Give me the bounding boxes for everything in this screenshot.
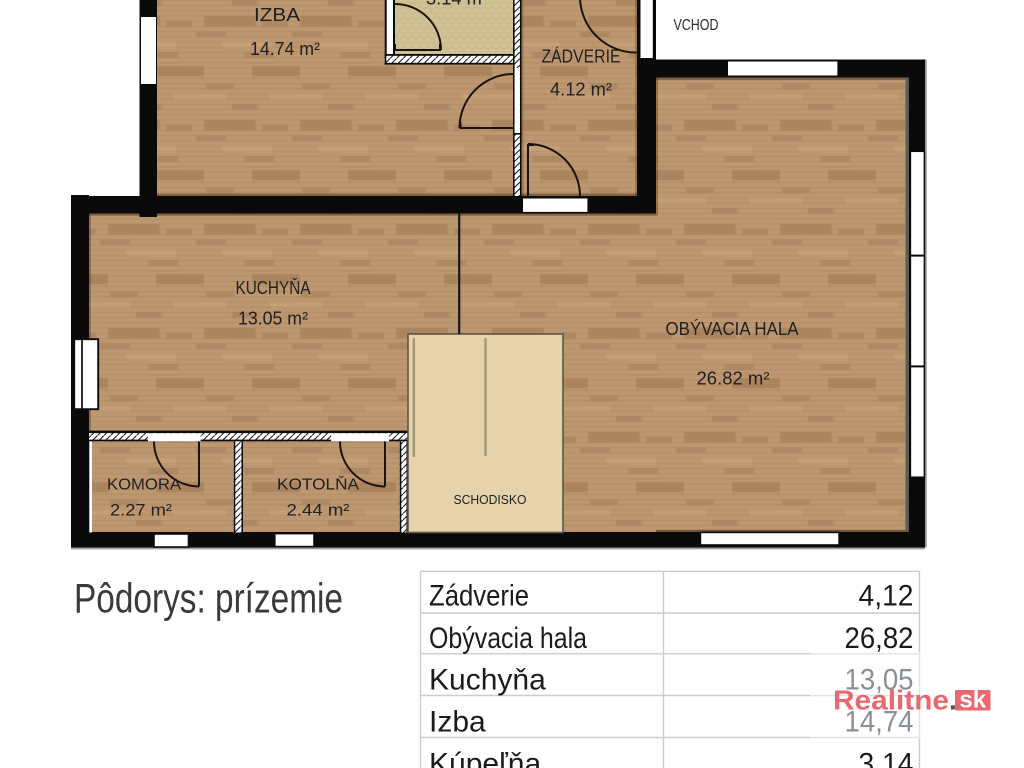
svg-text:Kúpeľňa: Kúpeľňa [429, 747, 541, 768]
svg-text:VCHOD: VCHOD [674, 17, 719, 34]
svg-text:Obývacia hala: Obývacia hala [429, 622, 587, 655]
svg-text:ZÁDVERIE: ZÁDVERIE [542, 47, 621, 67]
svg-text:Pôdorys: prízemie: Pôdorys: prízemie [74, 575, 343, 622]
svg-text:4.12 m²: 4.12 m² [550, 80, 612, 100]
svg-text:IZBA: IZBA [254, 5, 300, 25]
svg-text:2.27 m²: 2.27 m² [110, 502, 173, 520]
svg-text:14.74 m²: 14.74 m² [250, 39, 320, 59]
svg-text:26.82 m²: 26.82 m² [697, 369, 770, 389]
svg-text:KOTOLŇA: KOTOLŇA [277, 475, 359, 494]
svg-text:26,82: 26,82 [845, 622, 914, 655]
svg-text:Kuchyňa: Kuchyňa [429, 664, 546, 697]
svg-text:KOMORA: KOMORA [107, 477, 181, 494]
svg-text:13.05 m²: 13.05 m² [238, 309, 308, 329]
svg-text:4,12: 4,12 [859, 580, 914, 613]
svg-text:SCHODISKO: SCHODISKO [454, 492, 527, 507]
svg-text:3,14: 3,14 [859, 747, 914, 768]
svg-text:Zádverie: Zádverie [429, 580, 529, 613]
svg-text:sk: sk [959, 687, 986, 714]
svg-text:Realitne: Realitne [833, 685, 949, 716]
svg-text:KUCHYŇA: KUCHYŇA [236, 278, 311, 298]
svg-text:2.44 m²: 2.44 m² [287, 502, 351, 520]
svg-text:3.14 m²: 3.14 m² [426, 0, 488, 9]
svg-text:Izba: Izba [429, 706, 486, 739]
svg-text:OBÝVACIA HALA: OBÝVACIA HALA [666, 319, 799, 339]
